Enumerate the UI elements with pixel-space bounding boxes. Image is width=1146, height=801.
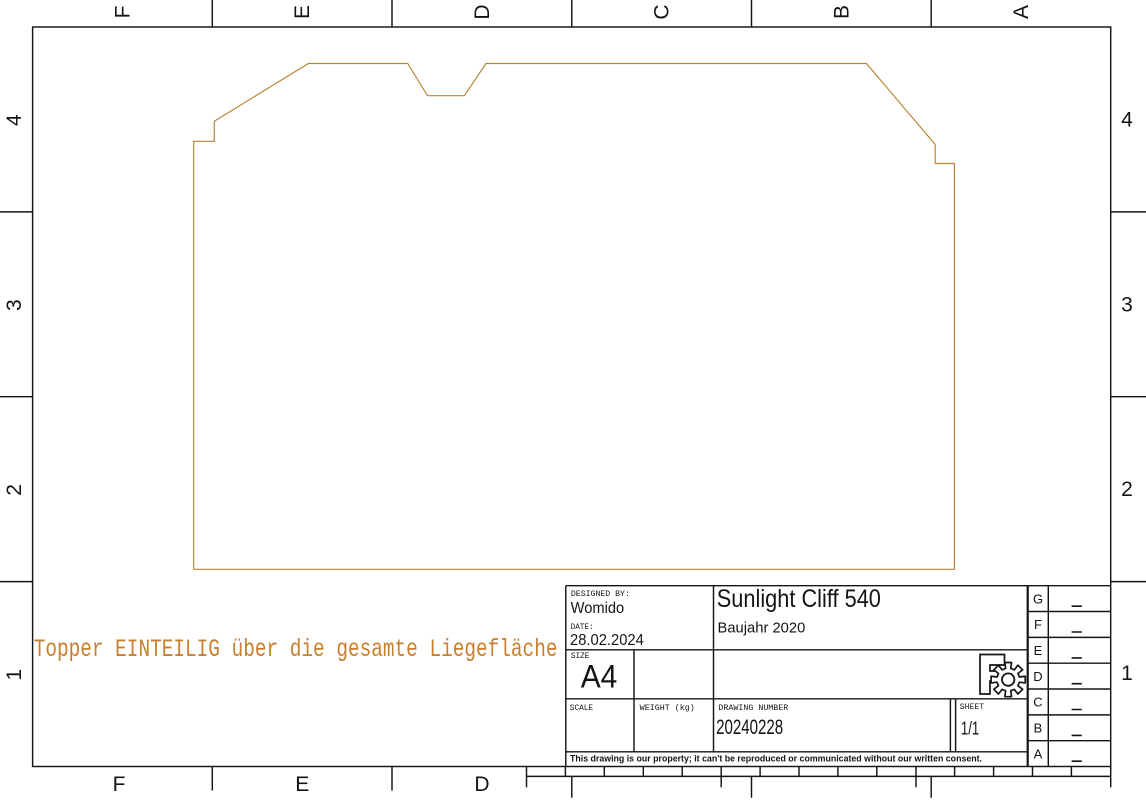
svg-text:2: 2 bbox=[1121, 478, 1133, 501]
svg-text:B: B bbox=[1034, 721, 1043, 736]
svg-text:D: D bbox=[1033, 669, 1042, 684]
svg-text:E: E bbox=[295, 773, 309, 796]
svg-text:E: E bbox=[1034, 643, 1043, 658]
svg-text:B: B bbox=[830, 5, 853, 19]
svg-text:DESIGNED BY:: DESIGNED BY: bbox=[571, 590, 630, 599]
svg-text:Topper EINTEILIG über die gesa: Topper EINTEILIG über die gesamte Liegef… bbox=[34, 635, 558, 664]
svg-text:2: 2 bbox=[3, 484, 26, 496]
svg-text:4: 4 bbox=[1121, 108, 1133, 131]
svg-text:C: C bbox=[651, 4, 674, 19]
svg-text:This drawing is our property;: This drawing is our property; it can't b… bbox=[570, 753, 982, 763]
svg-text:WEIGHT (kg): WEIGHT (kg) bbox=[640, 703, 695, 713]
svg-text:A: A bbox=[1034, 746, 1043, 761]
svg-text:3: 3 bbox=[1121, 293, 1133, 316]
svg-text:F: F bbox=[112, 6, 135, 19]
svg-text:DATE:: DATE: bbox=[571, 623, 594, 632]
svg-text:20240228: 20240228 bbox=[716, 716, 783, 739]
svg-text:A4: A4 bbox=[581, 658, 618, 694]
svg-text:SCALE: SCALE bbox=[570, 704, 593, 713]
svg-text:D: D bbox=[471, 4, 494, 19]
svg-text:F: F bbox=[113, 773, 126, 796]
svg-text:1/1: 1/1 bbox=[961, 717, 979, 738]
svg-text:3: 3 bbox=[3, 299, 26, 311]
svg-text:C: C bbox=[1033, 695, 1042, 710]
svg-text:A: A bbox=[1010, 5, 1033, 19]
svg-text:1: 1 bbox=[3, 669, 26, 681]
svg-text:F: F bbox=[1034, 617, 1042, 632]
svg-text:DRAWING NUMBER: DRAWING NUMBER bbox=[718, 704, 788, 713]
svg-text:Sunlight Cliff 540: Sunlight Cliff 540 bbox=[717, 585, 881, 613]
svg-text:E: E bbox=[291, 5, 314, 19]
svg-text:1: 1 bbox=[1121, 662, 1133, 685]
svg-text:G: G bbox=[1033, 591, 1043, 606]
svg-text:28.02.2024: 28.02.2024 bbox=[570, 632, 644, 649]
svg-text:SHEET: SHEET bbox=[960, 703, 984, 712]
svg-text:D: D bbox=[474, 773, 489, 796]
svg-text:Baujahr 2020: Baujahr 2020 bbox=[718, 621, 806, 637]
svg-text:Womido: Womido bbox=[571, 600, 625, 617]
svg-text:4: 4 bbox=[3, 114, 26, 126]
